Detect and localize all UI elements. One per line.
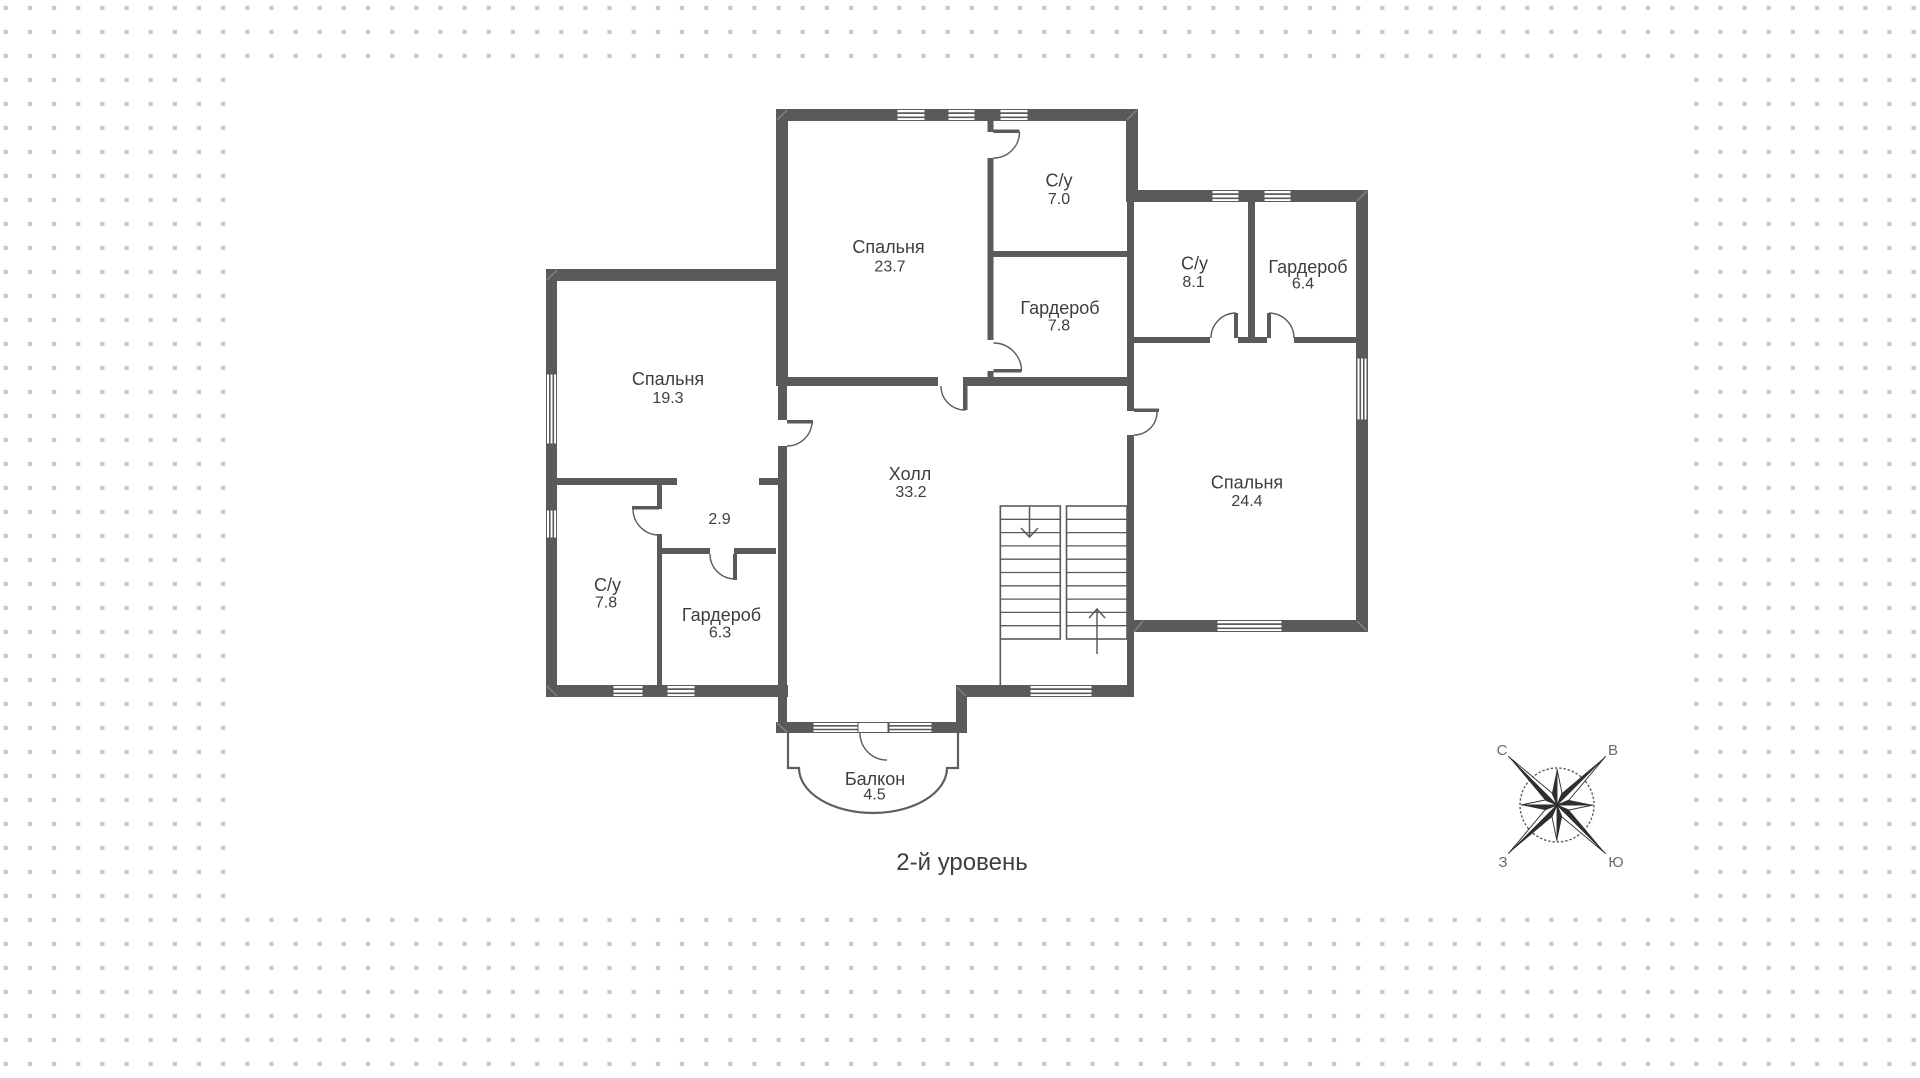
svg-text:Гардероб: Гардероб — [682, 605, 761, 625]
svg-text:В: В — [1608, 742, 1618, 759]
svg-text:6.4: 6.4 — [1292, 276, 1314, 293]
svg-text:33.2: 33.2 — [895, 484, 926, 501]
svg-text:Гардероб: Гардероб — [1020, 298, 1099, 318]
svg-text:7.8: 7.8 — [1048, 318, 1070, 335]
svg-text:З: З — [1498, 854, 1507, 871]
svg-text:С/у: С/у — [594, 575, 621, 595]
svg-text:6.3: 6.3 — [709, 625, 731, 642]
svg-text:С/у: С/у — [1046, 171, 1073, 191]
svg-text:19.3: 19.3 — [652, 390, 683, 407]
svg-text:Ю: Ю — [1608, 854, 1623, 871]
svg-text:7.0: 7.0 — [1048, 191, 1070, 208]
svg-text:2-й уровень: 2-й уровень — [896, 849, 1027, 876]
svg-text:7.8: 7.8 — [595, 595, 617, 612]
svg-text:8.1: 8.1 — [1182, 274, 1204, 291]
svg-text:Холл: Холл — [889, 464, 931, 484]
svg-text:2.9: 2.9 — [708, 511, 730, 528]
svg-text:Спальня: Спальня — [632, 369, 704, 389]
svg-text:С: С — [1497, 742, 1508, 759]
svg-text:23.7: 23.7 — [874, 259, 905, 276]
svg-text:С/у: С/у — [1181, 254, 1208, 274]
svg-text:Спальня: Спальня — [852, 237, 924, 257]
svg-text:Спальня: Спальня — [1211, 473, 1283, 493]
svg-text:Гардероб: Гардероб — [1268, 257, 1347, 277]
svg-text:24.4: 24.4 — [1231, 493, 1262, 510]
svg-text:4.5: 4.5 — [863, 787, 885, 804]
